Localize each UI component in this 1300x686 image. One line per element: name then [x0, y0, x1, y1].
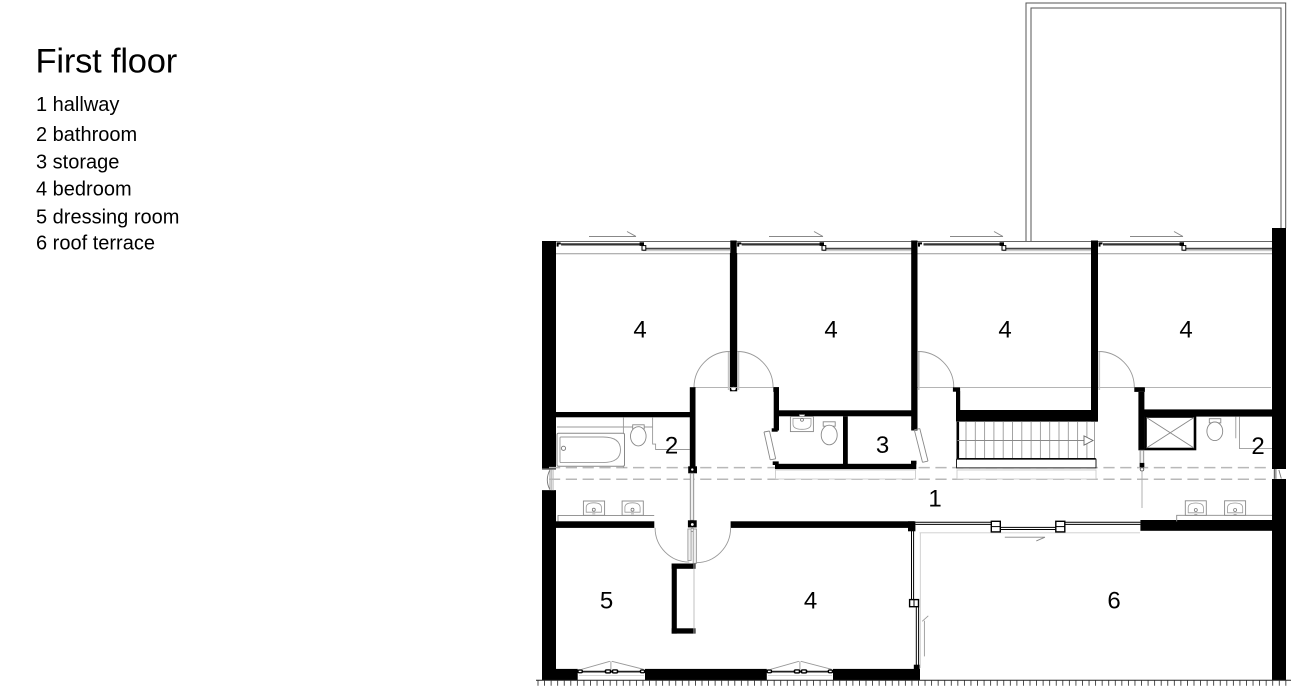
svg-text:2: 2 [665, 432, 678, 459]
svg-text:3 storage: 3 storage [36, 152, 119, 174]
svg-text:2: 2 [1251, 433, 1264, 460]
svg-text:1: 1 [928, 485, 941, 512]
svg-text:4: 4 [824, 317, 837, 344]
svg-text:4 bedroom: 4 bedroom [36, 179, 132, 201]
svg-text:4: 4 [1179, 317, 1192, 344]
svg-text:2 bathroom: 2 bathroom [36, 124, 137, 146]
svg-text:4: 4 [804, 588, 817, 615]
svg-text:4: 4 [998, 317, 1011, 344]
svg-text:6 roof terrace: 6 roof terrace [36, 233, 155, 255]
svg-text:5 dressing room: 5 dressing room [36, 207, 179, 229]
svg-text:First floor: First floor [36, 43, 178, 81]
svg-text:5: 5 [600, 588, 613, 615]
svg-text:4: 4 [633, 317, 646, 344]
svg-text:1 hallway: 1 hallway [36, 94, 119, 116]
svg-text:3: 3 [876, 432, 889, 459]
svg-text:6: 6 [1107, 588, 1120, 615]
